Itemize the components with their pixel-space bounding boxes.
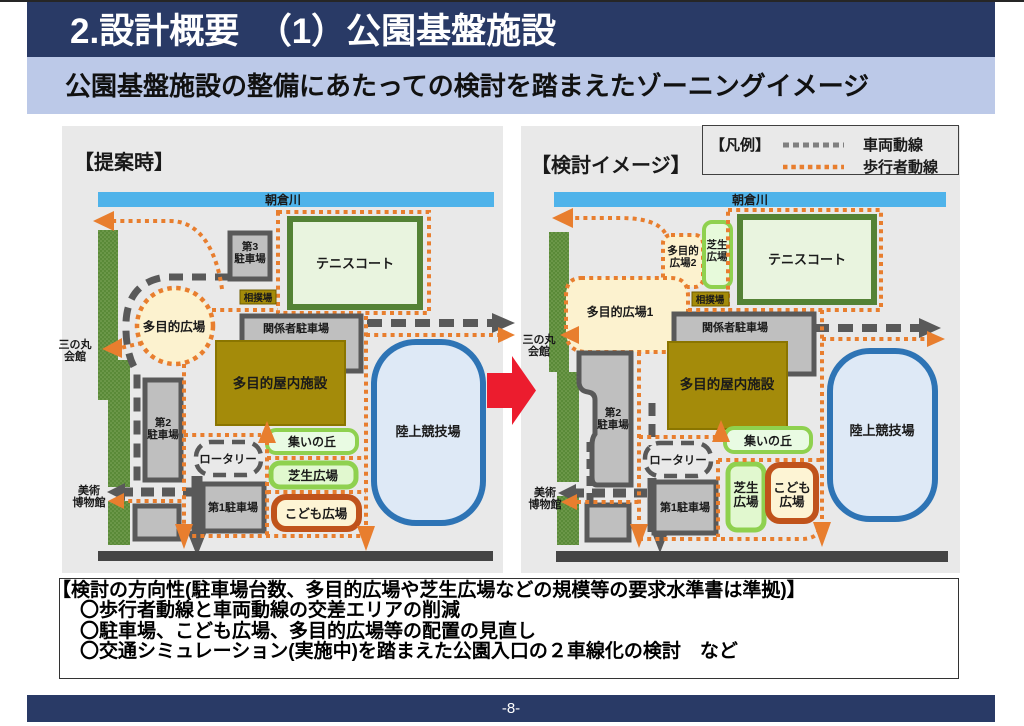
svg-text:車両動線: 車両動線 — [863, 136, 924, 154]
svg-text:三の丸会館: 三の丸会館 — [59, 337, 93, 363]
svg-text:美術博物館: 美術博物館 — [529, 485, 562, 511]
svg-text:多目的屋内施設: 多目的屋内施設 — [680, 376, 775, 392]
svg-text:【提案時】: 【提案時】 — [74, 150, 174, 174]
svg-text:陸上競技場: 陸上競技場 — [849, 423, 914, 438]
svg-text:関係者駐車場: 関係者駐車場 — [702, 320, 768, 334]
svg-text:朝倉川: 朝倉川 — [265, 192, 301, 207]
svg-text:相撲場: 相撲場 — [244, 292, 273, 304]
svg-text:多目的屋内施設: 多目的屋内施設 — [233, 375, 328, 391]
svg-text:芝生広場: 芝生広場 — [706, 238, 728, 263]
svg-text:【凡例】: 【凡例】 — [710, 136, 770, 154]
svg-text:第1駐車場: 第1駐車場 — [660, 500, 710, 514]
svg-text:ロータリー: ロータリー — [649, 453, 707, 467]
svg-text:芝生広場: 芝生広場 — [288, 468, 339, 483]
svg-text:ロータリー: ロータリー — [199, 452, 257, 466]
svg-text:第1駐車場: 第1駐車場 — [208, 500, 258, 514]
svg-text:歩行者動線: 歩行者動線 — [863, 158, 939, 176]
svg-text:芝生広場: 芝生広場 — [733, 480, 759, 509]
svg-text:集いの丘: 集いの丘 — [287, 434, 336, 449]
svg-text:朝倉川: 朝倉川 — [732, 192, 768, 207]
svg-text:集いの丘: 集いの丘 — [743, 433, 792, 448]
svg-text:関係者駐車場: 関係者駐車場 — [263, 321, 329, 335]
svg-text:テニスコート: テニスコート — [316, 256, 394, 271]
svg-text:【検討イメージ】: 【検討イメージ】 — [531, 153, 691, 177]
svg-text:こども広場: こども広場 — [285, 506, 348, 521]
svg-text:陸上競技場: 陸上競技場 — [395, 424, 460, 439]
svg-text:多目的広場1: 多目的広場1 — [587, 304, 654, 319]
svg-text:多目的広場2: 多目的広場2 — [667, 244, 699, 269]
svg-text:美術博物館: 美術博物館 — [73, 483, 106, 509]
svg-text:多目的広場: 多目的広場 — [143, 319, 206, 334]
svg-text:テニスコート: テニスコート — [768, 252, 846, 267]
svg-text:相撲場: 相撲場 — [696, 294, 725, 306]
